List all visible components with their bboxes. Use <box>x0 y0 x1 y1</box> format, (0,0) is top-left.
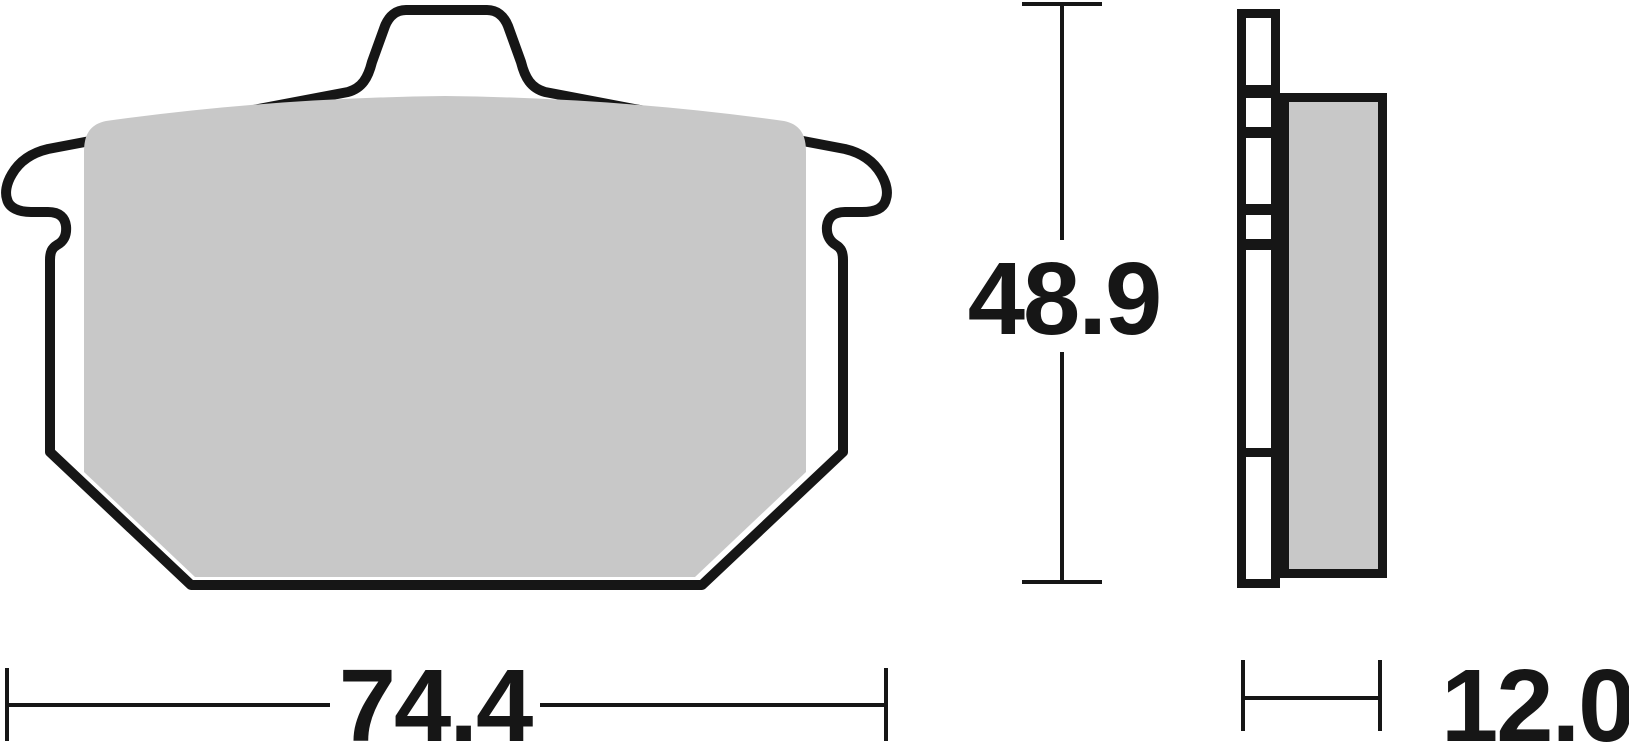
backplate-segment-divider <box>1237 448 1280 457</box>
backplate-segment-divider <box>1237 85 1280 98</box>
front-view <box>6 10 887 585</box>
backplate-segment-divider <box>1237 127 1280 138</box>
width-dimension-label: 74.4 <box>339 648 533 745</box>
side-view <box>1237 14 1383 584</box>
height-dimension-label: 48.9 <box>968 241 1160 356</box>
drawing-canvas: 74.4 48.9 12.0 <box>0 0 1629 745</box>
brake-pad-technical-drawing: 74.4 48.9 12.0 <box>0 0 1629 745</box>
dimension-thickness <box>1243 660 1380 731</box>
friction-material-front <box>84 96 806 577</box>
backplate-segment-divider <box>1237 204 1280 215</box>
backplate-side <box>1242 14 1276 584</box>
thickness-dimension-label: 12.0 <box>1441 648 1629 745</box>
backplate-segment-divider <box>1237 239 1280 250</box>
friction-material-side <box>1285 98 1383 574</box>
